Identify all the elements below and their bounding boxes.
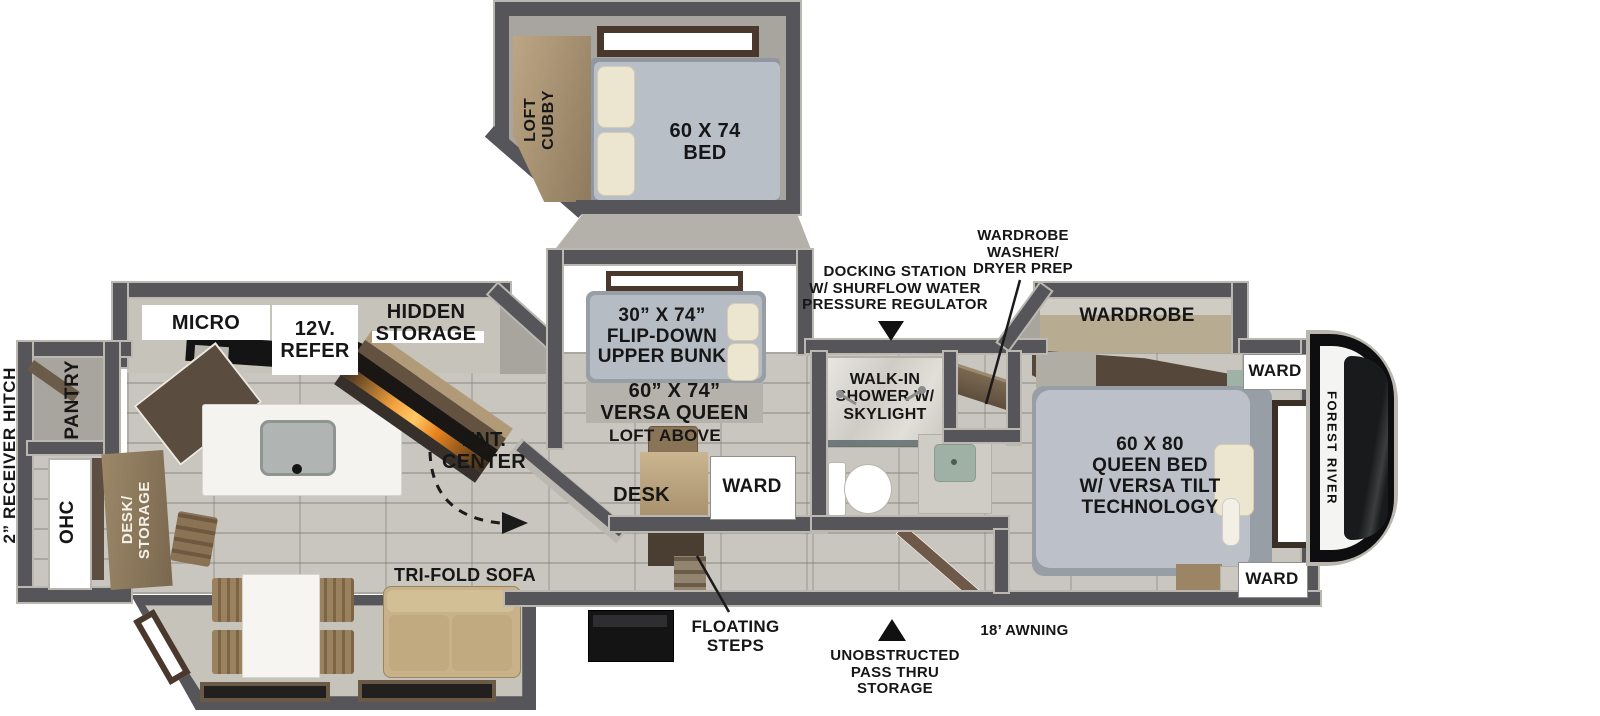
shower-label: WALK-IN SHOWER W/ SKYLIGHT [828, 360, 942, 434]
micro-label: MICRO [142, 305, 270, 340]
pantry-label: PANTRY [55, 360, 91, 440]
ent-center-label: ENT. CENTER [428, 428, 540, 474]
loft-window [597, 26, 759, 57]
loft-wall-bottom [576, 200, 800, 214]
closet-wall-bottom [944, 430, 1020, 442]
slide-window [358, 680, 496, 702]
bunk-wall-left [548, 250, 562, 448]
dinette2-chair [318, 630, 354, 674]
refer-label: 12V. REFER [272, 305, 358, 375]
vanity-sink [934, 444, 976, 482]
queen-bed-label: 60 X 80 QUEEN BED W/ VERSA TILT TECHNOLO… [1055, 433, 1245, 521]
desk-storage-label: DESK/ STORAGE [108, 460, 166, 580]
loft-wall-top [495, 2, 800, 16]
pantry-wall-right [105, 342, 119, 454]
sofa-cushion [389, 615, 449, 671]
docking-pointer-icon [878, 321, 904, 341]
receiver-hitch-label: 2” RECEIVER HITCH [0, 348, 20, 562]
shower-closet-divider [944, 352, 956, 436]
rear-chair [170, 511, 218, 567]
entry-step-top [593, 615, 667, 627]
headboard-cabinet [1036, 352, 1096, 388]
pass-thru-pointer-icon [878, 619, 906, 641]
slide-window [200, 682, 330, 702]
loft-above-label: LOFT ABOVE [590, 426, 740, 446]
rear-wall-bottom [18, 588, 131, 602]
kitchen-slide-wall-top [118, 283, 510, 297]
loft-bed-label: 60 X 74 BED [640, 116, 770, 168]
bunk-wall-top [553, 250, 812, 264]
awning-label: 18’ AWNING [962, 620, 1087, 642]
sofa-back [387, 590, 514, 612]
main-wall-bottom [505, 592, 1320, 605]
loft-pillow [597, 132, 635, 196]
dinette2-chair [212, 578, 244, 622]
ward-mid-label: WARD [710, 456, 794, 518]
bath-wall-left [812, 352, 826, 532]
wardrobe-slide-wall-top [1035, 283, 1240, 297]
brand-label: FOREST RIVER [1320, 360, 1344, 536]
entry-step-box [588, 610, 674, 662]
loft-apron [553, 212, 812, 252]
wd-prep-label: WARDROBE WASHER/ DRYER PREP [958, 226, 1088, 280]
kitchen-sink [260, 420, 336, 476]
upper-bunk-label: 30” X 74” FLIP-DOWN UPPER BUNK [592, 298, 732, 376]
ohc-label: OHC [50, 470, 86, 574]
wardrobe-label: WARDROBE [1048, 304, 1226, 328]
loft-wall-right [786, 2, 800, 214]
loft-pillow [597, 66, 635, 128]
ward-top-label: WARD [1243, 354, 1307, 388]
hidden-storage-label: HIDDEN STORAGE [362, 300, 490, 346]
sofa-label: TRI-FOLD SOFA [390, 566, 540, 586]
dinette2-chair [318, 578, 354, 622]
pass-thru-label: UNOBSTRUCTED PASS THRU STORAGE [810, 644, 980, 702]
loft-cubby-label: LOFT CUBBY [519, 55, 561, 185]
windshield [1344, 356, 1388, 540]
bath-wall-bottom [812, 517, 1008, 530]
bunk-window [606, 271, 743, 291]
bedroom-wall-left-lower [995, 530, 1008, 592]
dinette2-chair [212, 630, 244, 674]
sofa-cushion [452, 615, 512, 671]
floating-steps-treads [674, 556, 706, 596]
desk-label: DESK [584, 482, 699, 508]
ward-bottom-label: WARD [1238, 562, 1306, 596]
toilet-bowl [844, 464, 892, 514]
floating-steps-label: FLOATING STEPS [663, 614, 808, 660]
loft-wall-left [495, 2, 509, 132]
versa-queen-label: 60” X 74” VERSA QUEEN [586, 379, 763, 425]
rv-floorplan: MICRO 12V. REFER HIDDEN STORAGE PANTRY O… [0, 0, 1600, 716]
rear-wall-left [18, 342, 32, 602]
dinette2-table [242, 574, 320, 678]
tri-fold-sofa [383, 586, 521, 678]
